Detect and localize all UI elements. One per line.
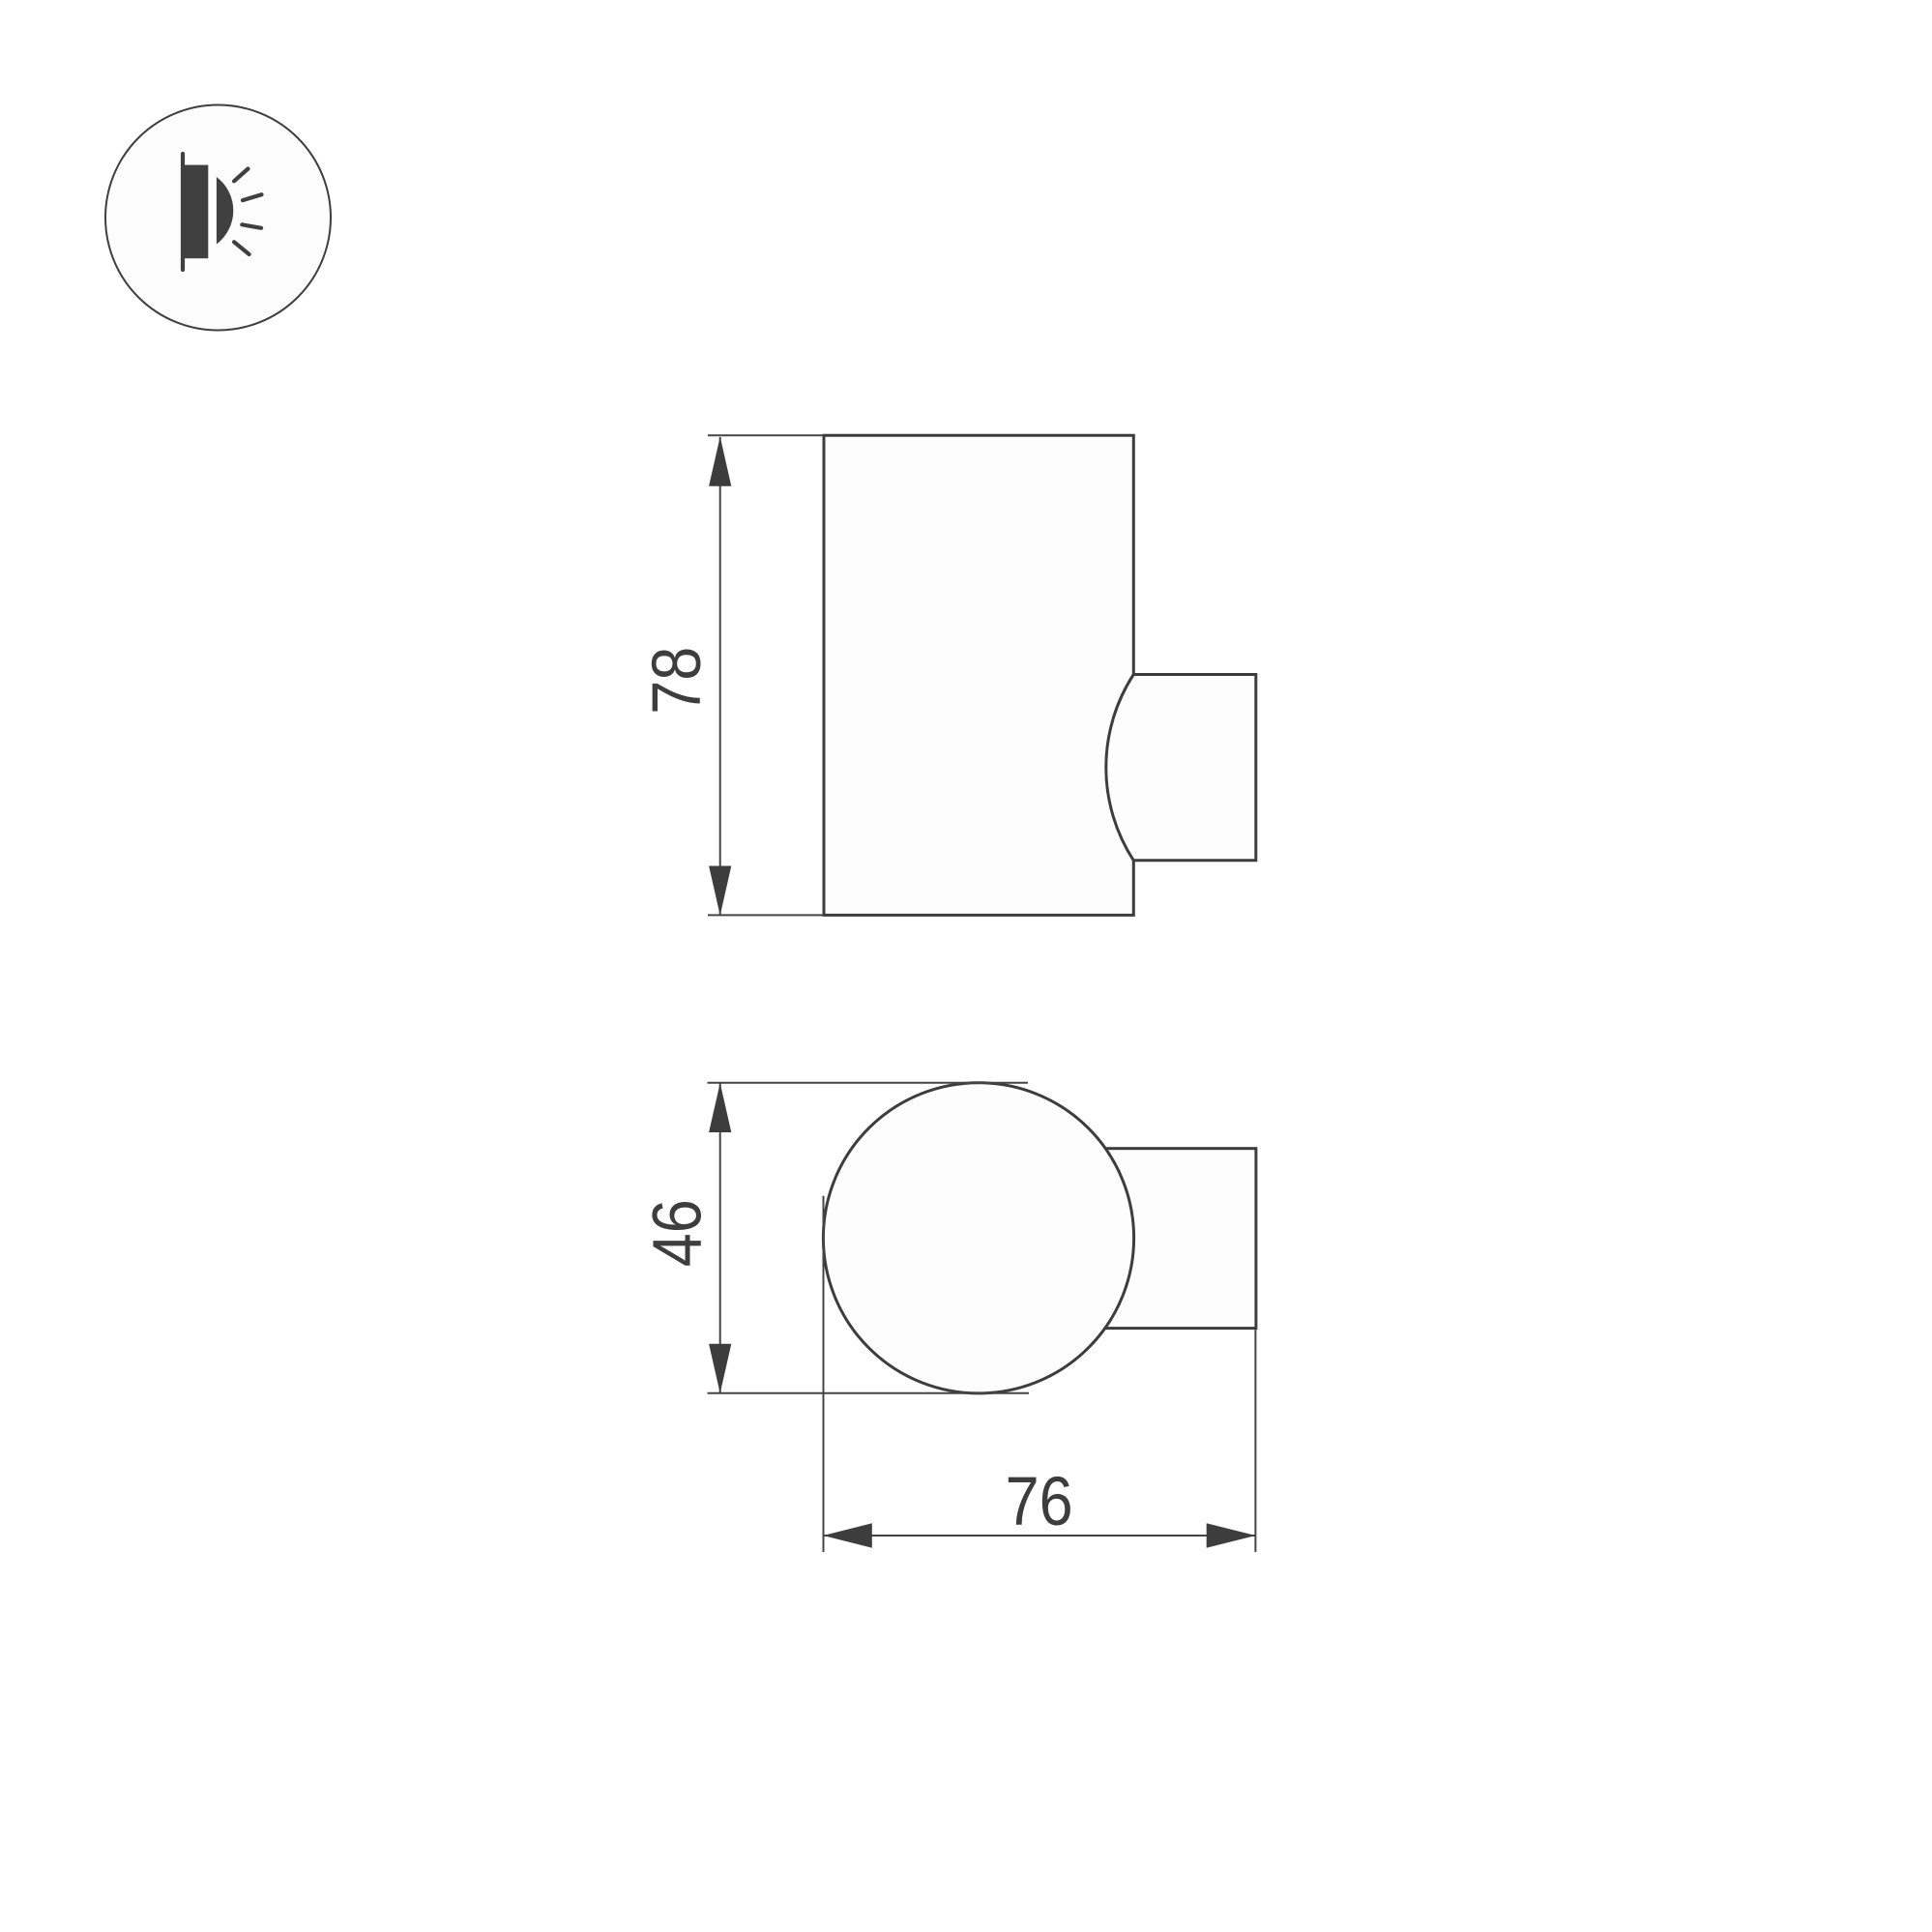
svg-text:46: 46 [639,1199,717,1267]
svg-text:78: 78 [638,647,716,715]
svg-text:76: 76 [1006,1463,1073,1540]
